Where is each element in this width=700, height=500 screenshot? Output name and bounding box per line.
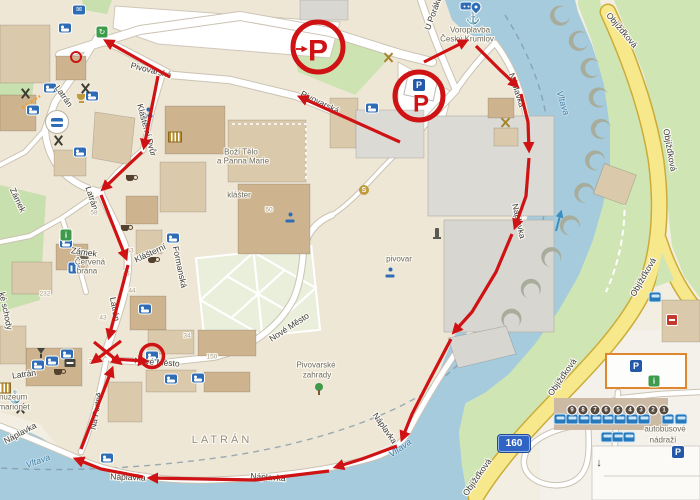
map-canvas[interactable]: ii✉↻⚓⚓SPPP987654321↓ PivovarskáPivovarsk…: [0, 0, 700, 500]
map-base: [0, 0, 700, 500]
road-shield-160: 160: [498, 435, 530, 452]
